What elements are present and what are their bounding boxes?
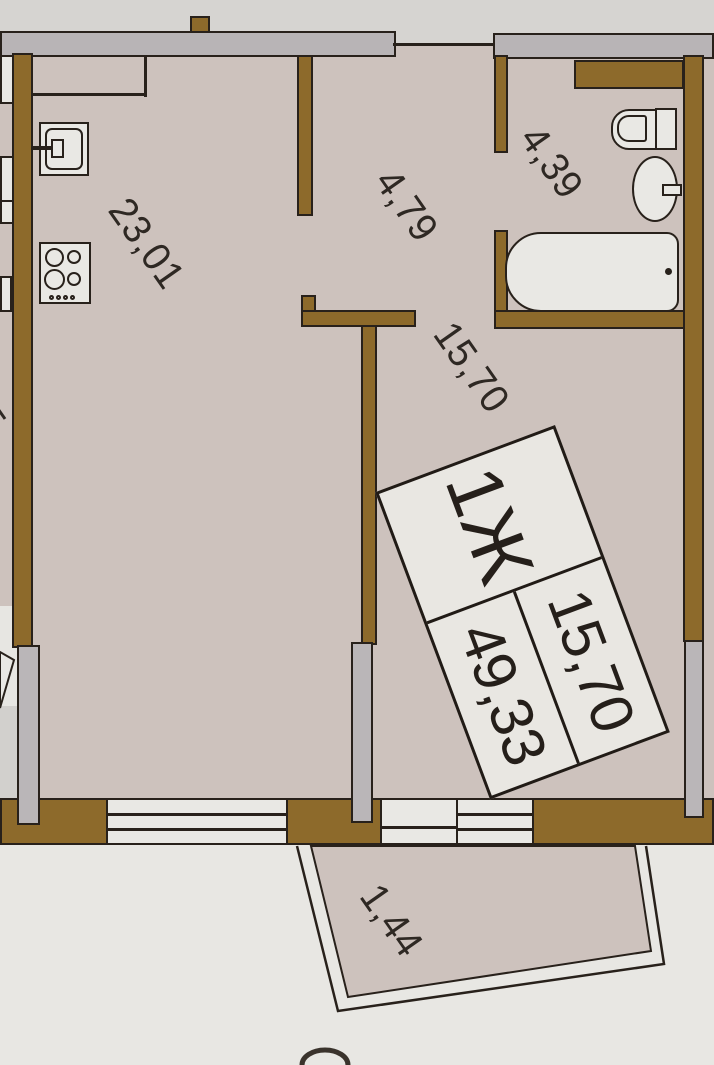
wall-mid-vertical: [361, 325, 377, 645]
toilet-tank: [655, 108, 677, 150]
basin-faucet-icon: [662, 184, 682, 196]
window-mullion: [458, 813, 532, 816]
tub-drain: [665, 268, 672, 275]
kitchen-duct-line-h: [33, 93, 147, 96]
toilet-icon: [611, 109, 659, 150]
corner-wedge: [0, 652, 14, 708]
pillar-right: [684, 640, 704, 818]
bathtub-icon: [505, 232, 679, 312]
wall-top-panel-right: [493, 33, 714, 59]
toilet-seat: [617, 115, 647, 142]
wall-top-panel-left: [0, 31, 396, 57]
burner: [67, 250, 81, 264]
window-mullion: [108, 828, 286, 831]
burner: [45, 248, 64, 267]
wall-bath-left-upper: [494, 55, 508, 153]
floor-plan-canvas: 23,01 4,79 4,39 15,70 1,44 5 1Ж 15,70 49…: [0, 0, 714, 1065]
wall-bath-bottom: [494, 310, 686, 329]
wall-left: [12, 53, 33, 648]
burner: [67, 272, 81, 286]
entry-threshold-line: [393, 43, 495, 46]
window-mullion: [108, 813, 286, 816]
window-room: [456, 798, 534, 845]
wall-bath-niche: [574, 60, 684, 89]
bottom-arc-mark: [302, 1050, 348, 1065]
wall-hall-bottom: [301, 310, 416, 327]
balcony-door-threshold: [380, 798, 458, 845]
stove-knob: [63, 295, 68, 300]
stove-knob: [49, 295, 54, 300]
window-mullion: [458, 828, 532, 831]
burner: [44, 269, 65, 290]
pillar-mid: [351, 642, 373, 823]
pillar-left: [17, 645, 40, 825]
stove-icon: [39, 242, 91, 304]
kitchen-duct-line-v: [144, 55, 147, 97]
wall-partition-kitchen-hall: [297, 55, 313, 216]
threshold-line: [382, 826, 456, 829]
window-living: [106, 798, 288, 845]
sink-faucet-icon: [51, 139, 64, 158]
stove-knob: [70, 295, 75, 300]
wall-right: [683, 55, 704, 642]
stove-knob: [56, 295, 61, 300]
